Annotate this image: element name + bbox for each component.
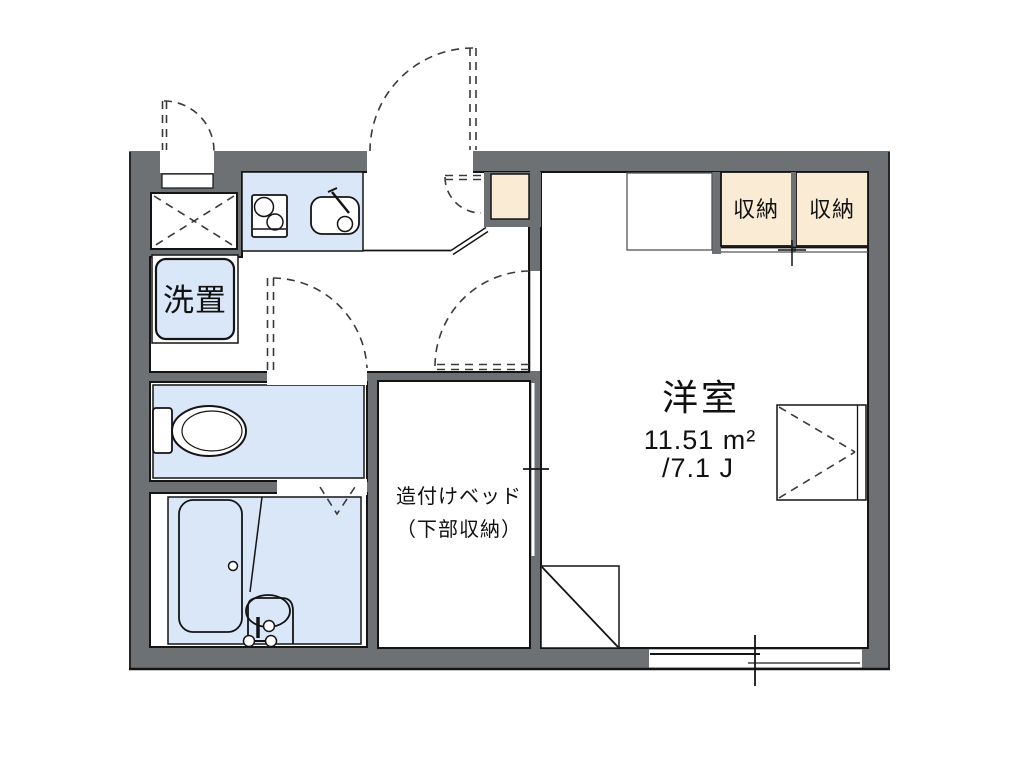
service-door-gap	[160, 151, 214, 173]
corner-counter	[541, 566, 619, 648]
shoe-cabinet	[491, 174, 529, 219]
trunk-storage-box	[151, 193, 237, 249]
room-area-jo: /7.1 J	[662, 453, 734, 483]
floor-plan-svg: 洗置	[0, 0, 1016, 772]
room-area-m2: 11.51 m²	[644, 425, 757, 455]
right-window	[777, 405, 866, 500]
closet-right-label: 収納	[809, 197, 855, 222]
room-doorway	[531, 271, 541, 371]
bathroom-doorway	[277, 479, 367, 495]
floor-plan-page: 洗置	[0, 0, 1016, 772]
washroom-doorway	[267, 370, 367, 385]
bed-label-line1: 造付けベッド	[396, 485, 522, 508]
entrance-door-swing	[370, 48, 476, 151]
room-name-label: 洋室	[662, 377, 740, 418]
service-door-swing	[163, 101, 215, 151]
meterbox-slot	[162, 174, 213, 188]
toilet-icon	[153, 406, 246, 456]
stove-icon	[252, 195, 287, 237]
entrance-door-gap	[367, 150, 473, 173]
refrigerator-space	[627, 173, 712, 250]
laundry-label: 洗置	[163, 283, 227, 318]
closet-left-label: 収納	[733, 197, 779, 222]
laundry-space: 洗置	[152, 255, 238, 343]
bed-room-floor	[378, 381, 530, 648]
bed-label-line2: （下部収納）	[396, 518, 522, 541]
